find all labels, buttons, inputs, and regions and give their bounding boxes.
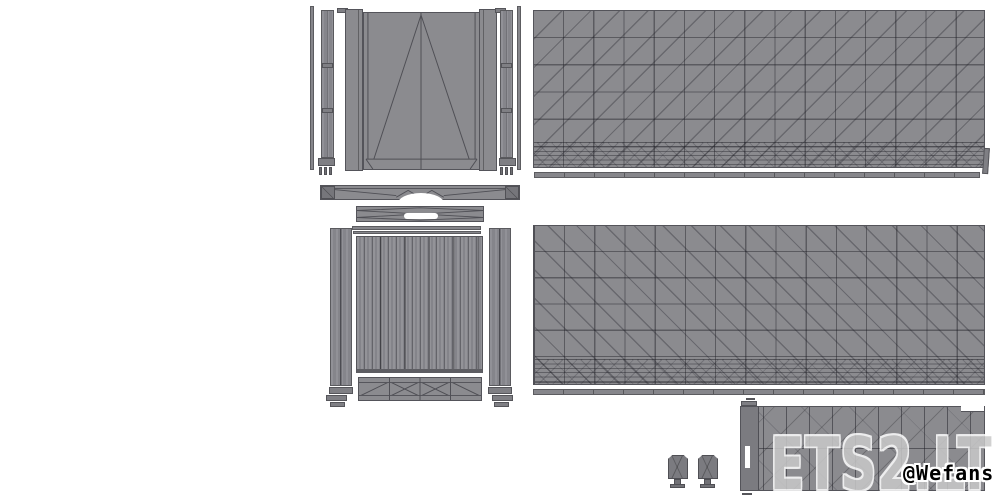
floor-pillar-left-foot bbox=[329, 387, 353, 394]
mudflap-right-base bbox=[700, 484, 715, 488]
bumper-endcap-left bbox=[321, 186, 335, 199]
rear-pillar-left-prong bbox=[324, 167, 327, 175]
floor-pillar-left bbox=[330, 228, 352, 386]
side-wall-bottom-dense-band bbox=[535, 359, 984, 384]
side-wall-panel-top bbox=[533, 10, 985, 168]
bumper-endcap-right bbox=[505, 186, 519, 199]
floor-pillar-right-foot bbox=[492, 395, 513, 401]
floor-pillar-left-foot bbox=[326, 395, 347, 401]
rear-bumper-bar bbox=[320, 185, 520, 200]
side-rail-strip-top bbox=[534, 172, 980, 178]
rear-pillar-right-mark bbox=[501, 108, 512, 113]
roof-right-notch bbox=[961, 406, 984, 412]
rear-pillar-left bbox=[321, 10, 334, 158]
rear-edge-strip-left bbox=[310, 6, 314, 170]
rear-pillar-left-foot bbox=[318, 158, 335, 166]
author-watermark: @Wefans bbox=[903, 461, 994, 485]
door-side-strip-left bbox=[345, 9, 363, 171]
crossmember-bar bbox=[356, 206, 484, 222]
floor-pillar-left-foot bbox=[330, 402, 345, 407]
door-wireframe-lines bbox=[364, 13, 479, 169]
side-wall-top-dense-band bbox=[534, 142, 984, 167]
mudflap-left-base bbox=[670, 484, 685, 488]
rear-pillar-left-mark bbox=[322, 108, 333, 113]
rear-pillar-left-mark bbox=[322, 63, 333, 68]
door-side-strip-right bbox=[479, 9, 497, 171]
floor-plank-panel bbox=[356, 236, 483, 373]
roof-bottom-dash bbox=[742, 493, 752, 495]
rear-edge-strip-right bbox=[517, 6, 521, 170]
roof-top-dash bbox=[746, 398, 755, 400]
floor-pillar-right-foot bbox=[494, 402, 509, 407]
rear-pillar-right bbox=[500, 10, 513, 158]
rear-door-panel bbox=[363, 12, 480, 170]
rear-pillar-left-prong bbox=[319, 167, 322, 175]
floor-end-bar bbox=[358, 377, 482, 401]
mudflap-right bbox=[698, 455, 718, 479]
floor-end-wireframe-lines bbox=[359, 378, 481, 400]
rear-pillar-right-foot bbox=[499, 158, 516, 166]
crossmember-hole bbox=[404, 213, 438, 219]
rear-pillar-left-prong bbox=[329, 167, 332, 175]
mudflap-left bbox=[668, 455, 688, 479]
floor-header-strip-2 bbox=[353, 231, 481, 234]
rear-pillar-right-mark bbox=[501, 63, 512, 68]
floor-pillar-right bbox=[489, 228, 511, 386]
floor-pillar-right-foot bbox=[488, 387, 512, 394]
rear-pillar-right-prong bbox=[505, 167, 508, 175]
wireframe-canvas: ETS2.LT @Wefans bbox=[0, 0, 1000, 500]
floor-header-strip-1 bbox=[352, 226, 481, 230]
roof-slot bbox=[745, 446, 750, 468]
side-wall-panel-bottom bbox=[533, 225, 985, 385]
rear-pillar-right-prong bbox=[510, 167, 513, 175]
rear-pillar-right-prong bbox=[500, 167, 503, 175]
roof-endcap-left bbox=[741, 407, 759, 490]
side-rail-strip-bottom bbox=[533, 389, 985, 395]
side-wall-top-corner-flap bbox=[982, 148, 990, 174]
